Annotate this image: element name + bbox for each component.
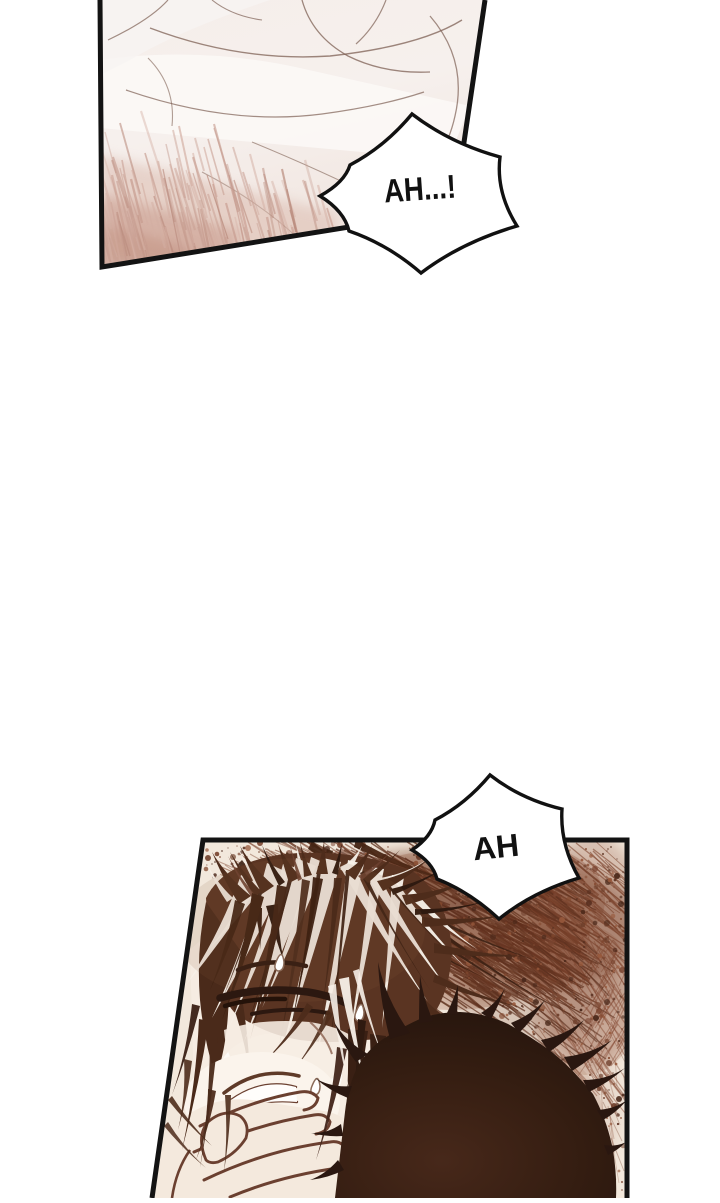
svg-text:AH: AH (471, 827, 521, 868)
svg-text:AH...!: AH...! (383, 168, 457, 210)
